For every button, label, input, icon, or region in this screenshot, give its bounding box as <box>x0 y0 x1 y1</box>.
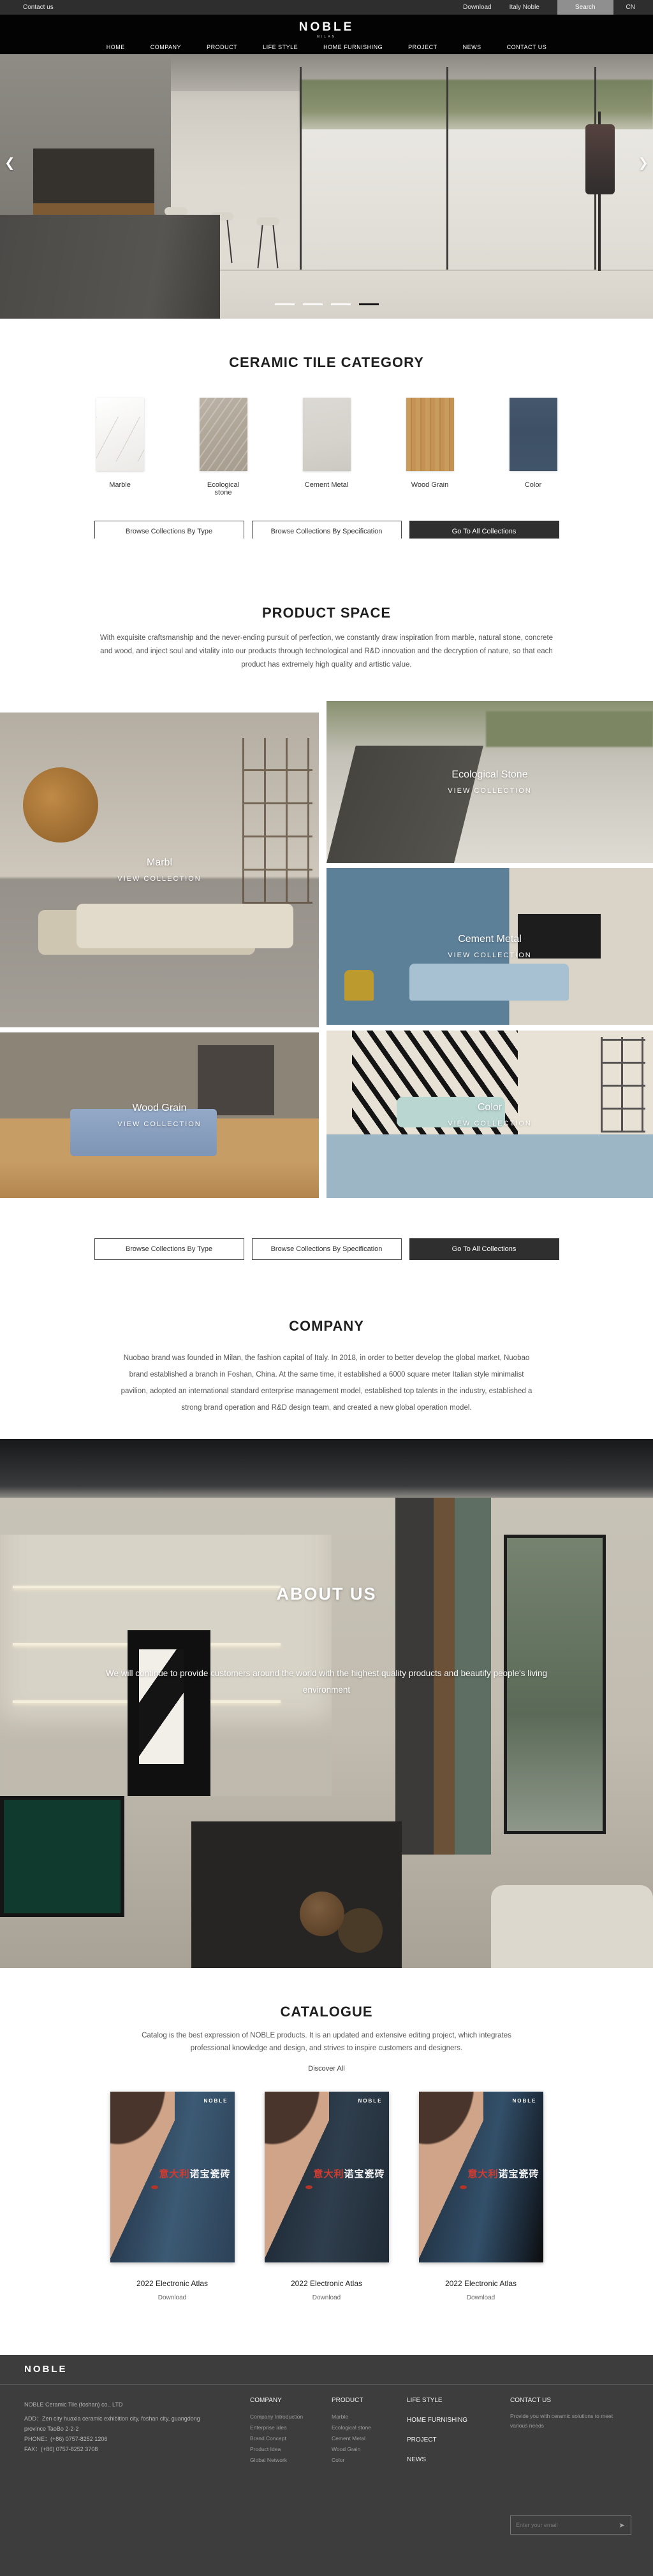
color-swatch <box>510 398 557 471</box>
collection-name: Wood Grain <box>132 1103 186 1114</box>
collection-card-wood-grain[interactable]: Wood Grain VIEW COLLECTION <box>0 1032 319 1198</box>
footer-address: ADD：Zen city huaxia ceramic exhibition c… <box>24 2413 216 2434</box>
topbar-right-group: Download Italy Noble Search CN <box>463 0 653 15</box>
cover-title-white: 诺宝瓷砖 <box>344 2169 385 2180</box>
logo-subtext: MILAN <box>0 35 653 39</box>
catalogue-cover: NOBLE 意大利诺宝瓷砖 <box>419 2092 543 2262</box>
catalogue-cover: NOBLE 意大利诺宝瓷砖 <box>265 2092 389 2262</box>
cement-metal-swatch <box>303 398 351 471</box>
category-tile-color[interactable]: Color <box>510 398 557 496</box>
browse-by-specification-button[interactable]: Browse Collections By Specification <box>252 521 402 539</box>
footer-column-product: PRODUCT Marble Ecological stone Cement M… <box>332 2397 371 2466</box>
ecological-stone-swatch <box>200 398 247 471</box>
carousel-dash-1[interactable] <box>275 303 295 305</box>
cover-title-red: 意大利 <box>159 2169 189 2180</box>
catalogue-cards-row: NOBLE 意大利诺宝瓷砖 2022 Electronic Atlas Down… <box>0 2092 653 2301</box>
cover-brand-logo: NOBLE <box>513 2098 537 2104</box>
footer-link-project[interactable]: PROJECT <box>407 2436 467 2443</box>
footer-logo[interactable]: NOBLE <box>24 2364 68 2375</box>
company-description: Nuobao brand was founded in Milan, the f… <box>116 1350 537 1416</box>
about-photo-coffee-table <box>300 1892 344 1936</box>
discover-all-link[interactable]: Discover All <box>0 2065 653 2073</box>
catalogue-section-title: CATALOGUE <box>0 2004 653 2020</box>
catalogue-item-name: 2022 Electronic Atlas <box>265 2279 389 2288</box>
cover-title: 意大利诺宝瓷砖 <box>110 2167 231 2180</box>
footer-contact-block: CONTACT US Provide you with ceramic solu… <box>510 2397 631 2431</box>
tile-label: Ecological stone <box>200 481 247 496</box>
catalogue-card-1[interactable]: NOBLE 意大利诺宝瓷砖 2022 Electronic Atlas Down… <box>110 2092 235 2301</box>
category-tile-ecological-stone[interactable]: Ecological stone <box>200 398 247 496</box>
nav-item-product[interactable]: PRODUCT <box>207 44 237 50</box>
about-photo-tv <box>0 1796 124 1917</box>
cover-title-white: 诺宝瓷砖 <box>498 2169 539 2180</box>
view-collection-link[interactable]: VIEW COLLECTION <box>117 1120 201 1128</box>
catalogue-download-link[interactable]: Download <box>265 2294 389 2301</box>
footer-link-wood-grain[interactable]: Wood Grain <box>332 2444 371 2455</box>
footer-fax: FAX：(+86) 0757-8252 3708 <box>24 2444 216 2454</box>
collection-card-marble[interactable]: Marbl VIEW COLLECTION <box>0 713 319 1027</box>
footer-link-company-introduction[interactable]: Company Introduction <box>250 2412 303 2422</box>
footer-link-life-style[interactable]: LIFE STYLE <box>407 2397 467 2404</box>
section-catalogue: CATALOGUE Catalog is the best expression… <box>0 1968 653 2355</box>
about-us-title: ABOUT US <box>0 1584 653 1604</box>
catalogue-item-name: 2022 Electronic Atlas <box>110 2279 235 2288</box>
footer-column-company: COMPANY Company Introduction Enterprise … <box>250 2397 303 2466</box>
footer-email-signup: ➤ <box>510 2515 631 2535</box>
collection-card-cement-metal[interactable]: Cement Metal VIEW COLLECTION <box>326 868 653 1025</box>
footer-link-product-idea[interactable]: Product Idea <box>250 2444 303 2455</box>
search-button[interactable]: Search <box>557 0 613 15</box>
catalogue-cover: NOBLE 意大利诺宝瓷砖 <box>110 2092 235 2262</box>
hero-photo-glass-frame <box>300 67 302 270</box>
logo-text: NOBLE <box>0 15 653 34</box>
tile-label: Wood Grain <box>406 481 454 489</box>
catalogue-card-2[interactable]: NOBLE 意大利诺宝瓷砖 2022 Electronic Atlas Down… <box>265 2092 389 2301</box>
footer-company-info: NOBLE Ceramic Tile (foshan) co., LTD ADD… <box>24 2399 216 2454</box>
catalogue-item-name: 2022 Electronic Atlas <box>419 2279 543 2288</box>
cover-brand-logo: NOBLE <box>204 2098 228 2104</box>
carousel-dash-2[interactable] <box>303 303 323 305</box>
cover-title-white: 诺宝瓷砖 <box>189 2169 230 2180</box>
italy-noble-link[interactable]: Italy Noble <box>510 4 539 11</box>
collection-overlay: Cement Metal VIEW COLLECTION <box>326 868 653 1025</box>
about-photo-sofa <box>491 1885 653 1968</box>
footer-link-home-furnishing[interactable]: HOME FURNISHING <box>407 2417 467 2424</box>
nav-item-life-style[interactable]: LIFE STYLE <box>263 44 298 50</box>
footer-link-brand-concept[interactable]: Brand Concept <box>250 2433 303 2444</box>
footer-phone: PHONE：(+86) 0757-8252 1206 <box>24 2434 216 2444</box>
browse-by-type-button[interactable]: Browse Collections By Type <box>94 521 244 539</box>
product-space-grid: Marbl VIEW COLLECTION Ecological Stone V… <box>0 701 653 1198</box>
cover-title-red: 意大利 <box>467 2169 498 2180</box>
footer-divider <box>0 2384 653 2385</box>
view-collection-link[interactable]: VIEW COLLECTION <box>448 952 531 959</box>
top-utility-bar: Contact us Download Italy Noble Search C… <box>0 0 653 15</box>
catalogue-download-link[interactable]: Download <box>110 2294 235 2301</box>
tile-label: Color <box>510 481 557 489</box>
section-about-us: ABOUT US We will continue to provide cus… <box>0 1439 653 1968</box>
collection-overlay: Ecological Stone VIEW COLLECTION <box>326 701 653 863</box>
category-tile-cement-metal[interactable]: Cement Metal <box>303 398 351 496</box>
collection-card-ecological-stone[interactable]: Ecological Stone VIEW COLLECTION <box>326 701 653 863</box>
tile-label: Cement Metal <box>303 481 351 489</box>
browse-by-type-button[interactable]: Browse Collections By Type <box>94 1238 244 1260</box>
about-photo-artwork <box>128 1630 210 1796</box>
footer-link-marble[interactable]: Marble <box>332 2412 371 2422</box>
footer-link-cement-metal[interactable]: Cement Metal <box>332 2433 371 2444</box>
view-collection-link[interactable]: VIEW COLLECTION <box>117 875 201 883</box>
footer-link-enterprise-idea[interactable]: Enterprise Idea <box>250 2422 303 2433</box>
browse-by-specification-button[interactable]: Browse Collections By Specification <box>252 1238 402 1260</box>
collection-card-color[interactable]: Color VIEW COLLECTION <box>326 1031 653 1198</box>
collection-overlay: Marbl VIEW COLLECTION <box>0 713 319 1027</box>
product-space-description: With exquisite craftsmanship and the nev… <box>97 632 556 672</box>
marble-swatch <box>96 398 144 471</box>
site-header: NOBLE MILAN HOME COMPANY PRODUCT LIFE ST… <box>0 15 653 54</box>
go-to-all-collections-button[interactable]: Go To All Collections <box>409 521 559 539</box>
about-photo-ceiling <box>0 1439 653 1498</box>
cover-brand-logo: NOBLE <box>358 2098 383 2104</box>
category-section-title: CERAMIC TILE CATEGORY <box>0 354 653 371</box>
footer-contact-text: Provide you with ceramic solutions to me… <box>510 2412 631 2431</box>
carousel-pagination <box>0 303 653 305</box>
nav-item-news[interactable]: NEWS <box>463 44 481 50</box>
carousel-next-icon[interactable]: ❯ <box>638 155 649 171</box>
section-product-space: PRODUCT SPACE With exquisite craftsmansh… <box>0 539 653 1300</box>
hero-photo-bar-stool <box>256 217 279 268</box>
product-space-buttons-row: Browse Collections By Type Browse Collec… <box>0 1238 653 1260</box>
cover-model-hair <box>419 2092 483 2156</box>
site-logo[interactable]: NOBLE MILAN <box>0 15 653 39</box>
nav-item-contact-us[interactable]: CONTACT US <box>507 44 547 50</box>
hero-photo-fireplace <box>33 148 154 215</box>
collection-name: Cement Metal <box>458 934 522 945</box>
collection-overlay: Color VIEW COLLECTION <box>326 1031 653 1198</box>
hero-photo-floor-line <box>171 270 653 271</box>
download-link[interactable]: Download <box>463 4 491 11</box>
collection-name: Marbl <box>147 857 172 869</box>
nav-item-project[interactable]: PROJECT <box>408 44 437 50</box>
noble-homepage: Contact us Download Italy Noble Search C… <box>0 0 653 2576</box>
footer-nav-links: LIFE STYLE HOME FURNISHING PROJECT NEWS <box>407 2397 467 2476</box>
section-ceramic-tile-category: CERAMIC TILE CATEGORY Marble Ecological … <box>0 319 653 539</box>
contact-us-link[interactable]: Contact us <box>23 4 54 11</box>
carousel-prev-icon[interactable]: ❮ <box>4 155 15 171</box>
footer-company-name: NOBLE Ceramic Tile (foshan) co., LTD <box>24 2399 216 2410</box>
category-tile-wood-grain[interactable]: Wood Grain <box>406 398 454 496</box>
catalogue-download-link[interactable]: Download <box>419 2294 543 2301</box>
catalogue-description: Catalog is the best expression of NOBLE … <box>122 2029 531 2055</box>
hero-photo-glass-frame <box>446 67 448 270</box>
tile-label: Marble <box>96 481 144 489</box>
nav-item-home-furnishing[interactable]: HOME FURNISHING <box>323 44 383 50</box>
cover-title-red: 意大利 <box>313 2169 344 2180</box>
footer-link-color[interactable]: Color <box>332 2455 371 2466</box>
wood-grain-swatch <box>406 398 454 471</box>
product-space-title: PRODUCT SPACE <box>0 605 653 621</box>
company-section-title: COMPANY <box>0 1318 653 1335</box>
site-footer: NOBLE NOBLE Ceramic Tile (foshan) co., L… <box>0 2355 653 2576</box>
category-buttons-row: Browse Collections By Type Browse Collec… <box>0 521 653 539</box>
carousel-dash-3[interactable] <box>331 303 351 305</box>
section-company: COMPANY Nuobao brand was founded in Mila… <box>0 1300 653 1439</box>
category-tiles-row: Marble Ecological stone Cement Metal Woo… <box>0 398 653 496</box>
footer-link-global-network[interactable]: Global Network <box>250 2455 303 2466</box>
footer-column-title[interactable]: COMPANY <box>250 2397 303 2404</box>
carousel-dash-4-active[interactable] <box>359 303 379 305</box>
cover-model-hair <box>110 2092 175 2156</box>
view-collection-link[interactable]: VIEW COLLECTION <box>448 787 531 795</box>
send-icon[interactable]: ➤ <box>613 2521 631 2529</box>
cover-model-hair <box>265 2092 329 2156</box>
nav-item-home[interactable]: HOME <box>106 44 125 50</box>
collection-name: Color <box>478 1102 502 1113</box>
language-toggle[interactable]: CN <box>626 4 635 11</box>
footer-contact-title[interactable]: CONTACT US <box>510 2397 631 2404</box>
go-to-all-collections-button[interactable]: Go To All Collections <box>409 1238 559 1260</box>
main-nav: HOME COMPANY PRODUCT LIFE STYLE HOME FUR… <box>0 44 653 50</box>
catalogue-card-3[interactable]: NOBLE 意大利诺宝瓷砖 2022 Electronic Atlas Down… <box>419 2092 543 2301</box>
footer-link-ecological-stone[interactable]: Ecological stone <box>332 2422 371 2433</box>
about-photo-cabinet <box>191 1821 402 1968</box>
collection-name: Ecological Stone <box>451 769 527 781</box>
nav-item-company[interactable]: COMPANY <box>150 44 181 50</box>
email-input[interactable] <box>511 2522 613 2528</box>
hero-photo-coat <box>585 124 615 194</box>
cover-title: 意大利诺宝瓷砖 <box>265 2167 385 2180</box>
cover-title: 意大利诺宝瓷砖 <box>419 2167 539 2180</box>
footer-link-news[interactable]: NEWS <box>407 2456 467 2463</box>
category-tile-marble[interactable]: Marble <box>96 398 144 496</box>
view-collection-link[interactable]: VIEW COLLECTION <box>448 1120 531 1127</box>
about-us-description: We will continue to provide customers ar… <box>84 1665 569 1698</box>
hero-carousel: ❮ ❯ <box>0 54 653 319</box>
collection-overlay: Wood Grain VIEW COLLECTION <box>0 1032 319 1198</box>
footer-column-title[interactable]: PRODUCT <box>332 2397 371 2404</box>
